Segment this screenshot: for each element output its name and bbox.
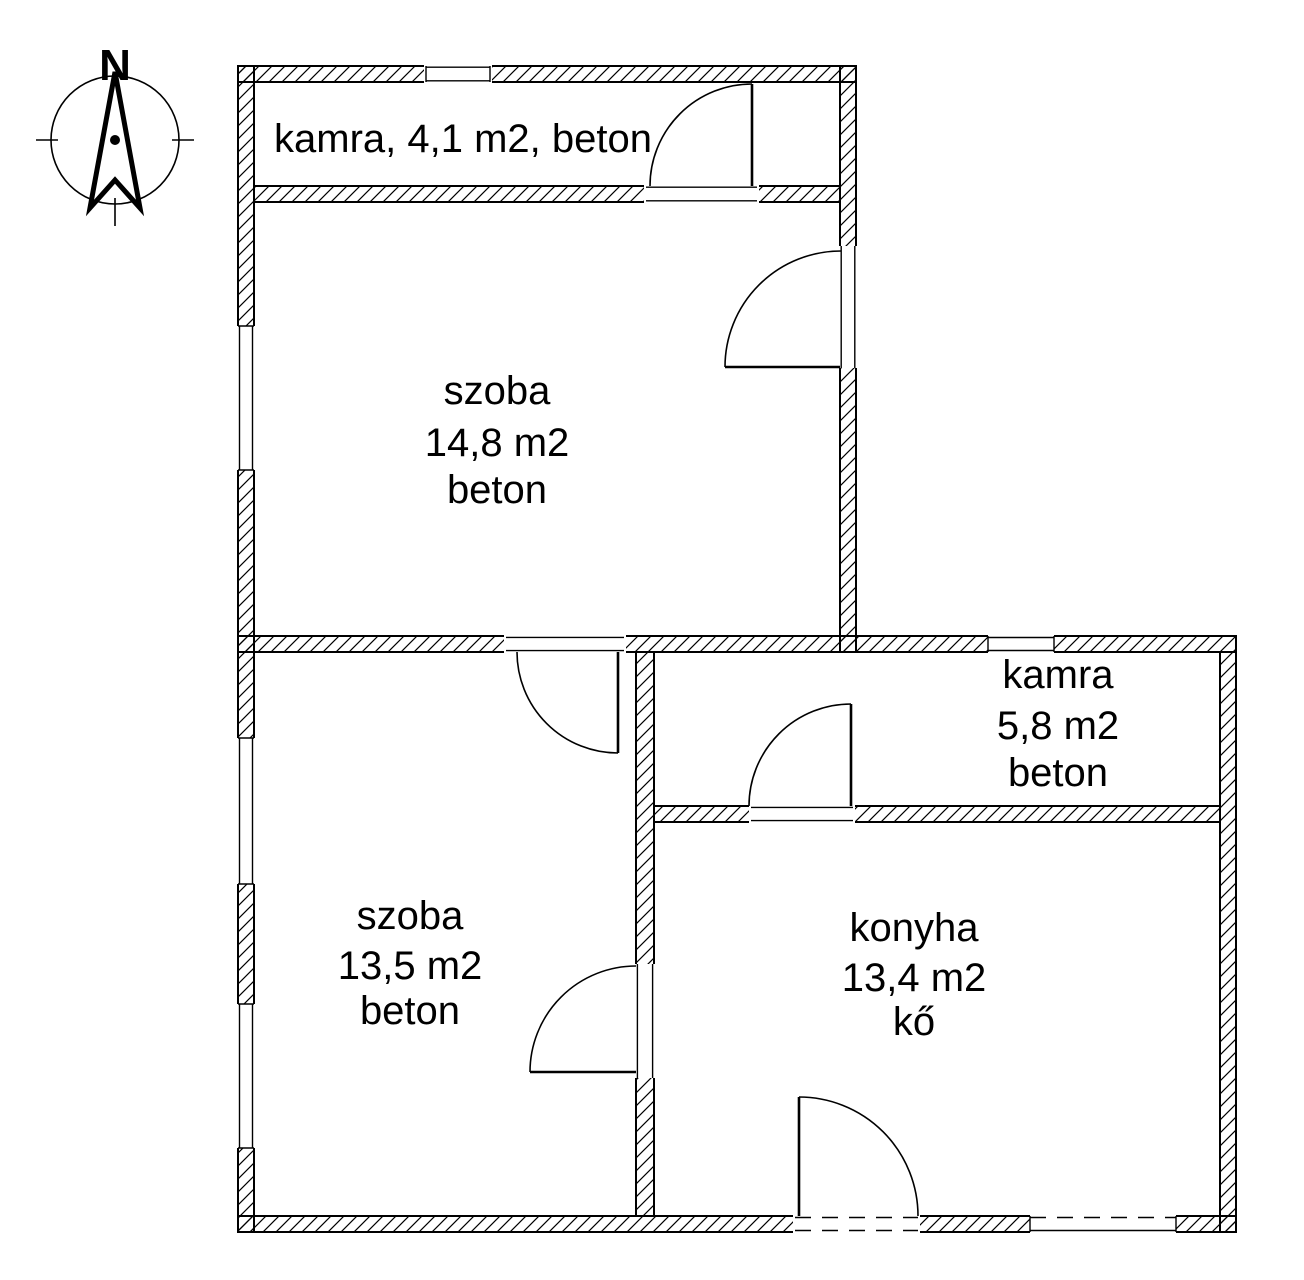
door-szoba-bottom-top (517, 652, 618, 753)
room-floor: kő (893, 1000, 935, 1044)
room-labels: kamra, 4,1 m2, beton szoba 14,8 m2 beton… (274, 117, 1119, 1044)
room-area: 5,8 m2 (997, 704, 1119, 748)
room-area: 14,8 m2 (425, 421, 570, 465)
window-konyha-bottom-dashed (1030, 1214, 1176, 1234)
room-floor: beton (1008, 751, 1108, 795)
opening-szoba-bottom-top (504, 634, 626, 654)
window-left-upper (236, 326, 256, 470)
compass-north-label: N (99, 41, 131, 90)
walls (238, 66, 1236, 1232)
window-kamra-right-top (988, 634, 1054, 654)
door-openings (504, 184, 920, 1234)
label-kamra-top: kamra, 4,1 m2, beton (274, 117, 652, 161)
label-szoba-bottom: szoba 13,5 m2 beton (338, 894, 483, 1033)
door-szoba-top (725, 251, 841, 367)
label-szoba-top: szoba 14,8 m2 beton (425, 369, 570, 512)
opening-middle-wall (634, 964, 656, 1078)
room-area: 13,4 m2 (842, 956, 987, 1000)
compass-rose: N (36, 41, 194, 226)
door-kamra-top (650, 84, 752, 186)
label-kamra-right: kamra 5,8 m2 beton (997, 653, 1119, 795)
window-left-middle (236, 738, 256, 884)
room-floor: beton (447, 468, 547, 512)
compass-center-dot (110, 135, 120, 145)
room-area: 13,5 m2 (338, 944, 483, 988)
window-top-wall (424, 64, 492, 84)
door-konyha-bottom (799, 1097, 918, 1216)
wall-top (238, 66, 856, 82)
label-konyha: konyha 13,4 m2 kő (842, 906, 987, 1044)
window-left-lower (236, 1004, 256, 1148)
floor-plan-canvas: N kamra, 4,1 m2, beton szoba 14,8 m2 bet… (0, 0, 1304, 1280)
room-name: konyha (850, 906, 980, 950)
door-kamra-right (749, 704, 851, 806)
opening-kamra-right (749, 804, 855, 824)
wall-kamra-right-bottom (654, 806, 1220, 822)
opening-kamra-top (644, 184, 759, 204)
room-floor: beton (360, 989, 460, 1033)
opening-konyha-bottom-dashed (793, 1214, 920, 1234)
wall-middle-vertical (636, 652, 654, 1216)
room-name: kamra (1002, 653, 1114, 697)
floor-plan-page: N kamra, 4,1 m2, beton szoba 14,8 m2 bet… (0, 0, 1304, 1280)
wall-right-lower (1220, 652, 1236, 1232)
door-middle-wall (530, 966, 636, 1072)
room-name: szoba (444, 369, 551, 413)
opening-szoba-top-right (838, 246, 858, 368)
wall-middle-band (238, 636, 1236, 652)
room-name: szoba (357, 894, 464, 938)
